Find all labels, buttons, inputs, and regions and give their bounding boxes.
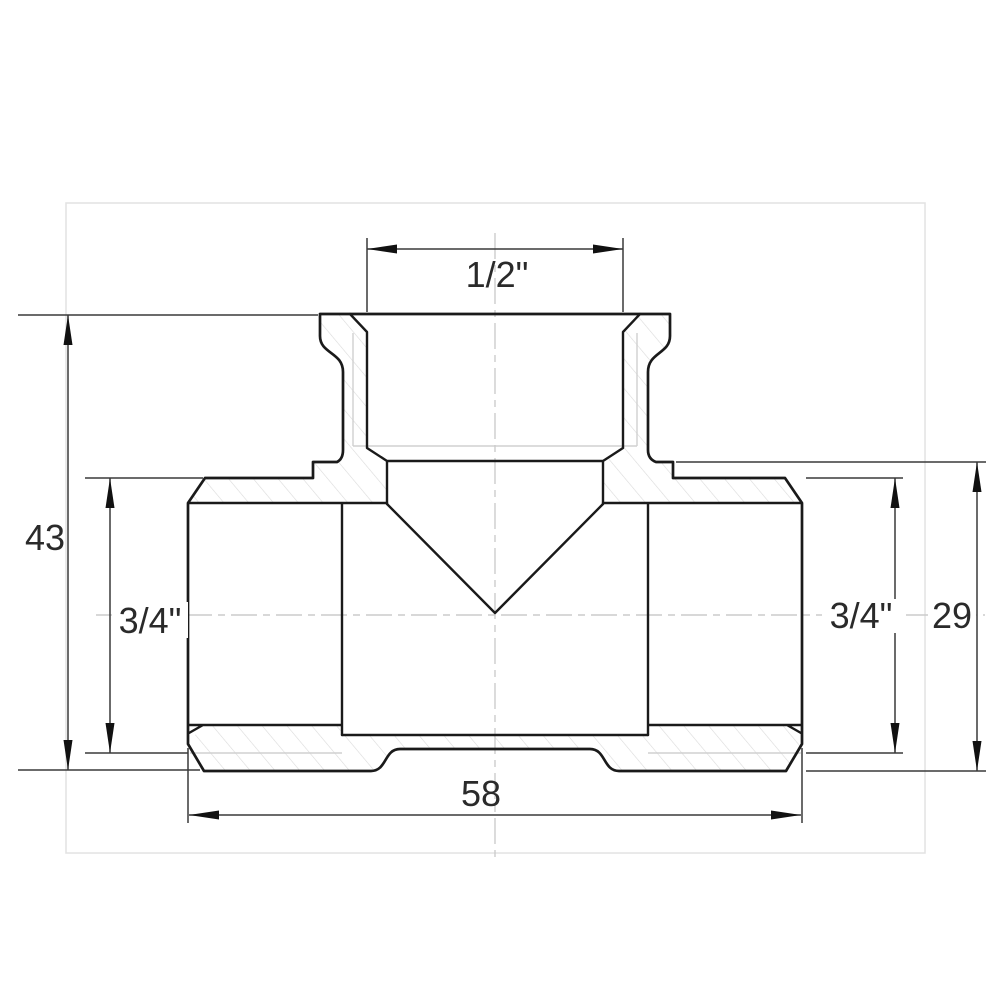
arrow-up-icon — [64, 315, 73, 345]
right-port-bore — [603, 503, 801, 735]
arrow-right-icon — [593, 245, 623, 254]
left-port-bore — [189, 503, 387, 735]
arrow-down-icon — [64, 740, 73, 770]
technical-drawing-canvas: 1/2" 43 3/4" 3/4" 29 58 — [0, 0, 1000, 1000]
arrow-left-icon — [189, 811, 219, 820]
arrow-down-icon — [106, 723, 115, 753]
hatch-upper-right — [603, 314, 801, 503]
arrow-right-icon — [771, 811, 801, 820]
arrow-down-icon — [891, 723, 900, 753]
label-right-port: 3/4" — [830, 595, 893, 636]
label-right-end-height: 29 — [932, 595, 972, 636]
label-overall-width: 58 — [461, 773, 501, 814]
arrow-down-icon — [973, 741, 982, 771]
dimension-labels: 1/2" 43 3/4" 3/4" 29 58 — [25, 254, 972, 814]
arrow-left-icon — [367, 245, 397, 254]
hatch-upper-left — [189, 314, 387, 503]
label-left-port: 3/4" — [119, 600, 182, 641]
label-overall-height: 43 — [25, 517, 65, 558]
arrow-up-icon — [973, 462, 982, 492]
label-top-width: 1/2" — [466, 254, 529, 295]
arrow-up-icon — [106, 478, 115, 508]
technical-drawing-page: 1/2" 43 3/4" 3/4" 29 58 — [0, 0, 1000, 1000]
arrow-up-icon — [891, 478, 900, 508]
